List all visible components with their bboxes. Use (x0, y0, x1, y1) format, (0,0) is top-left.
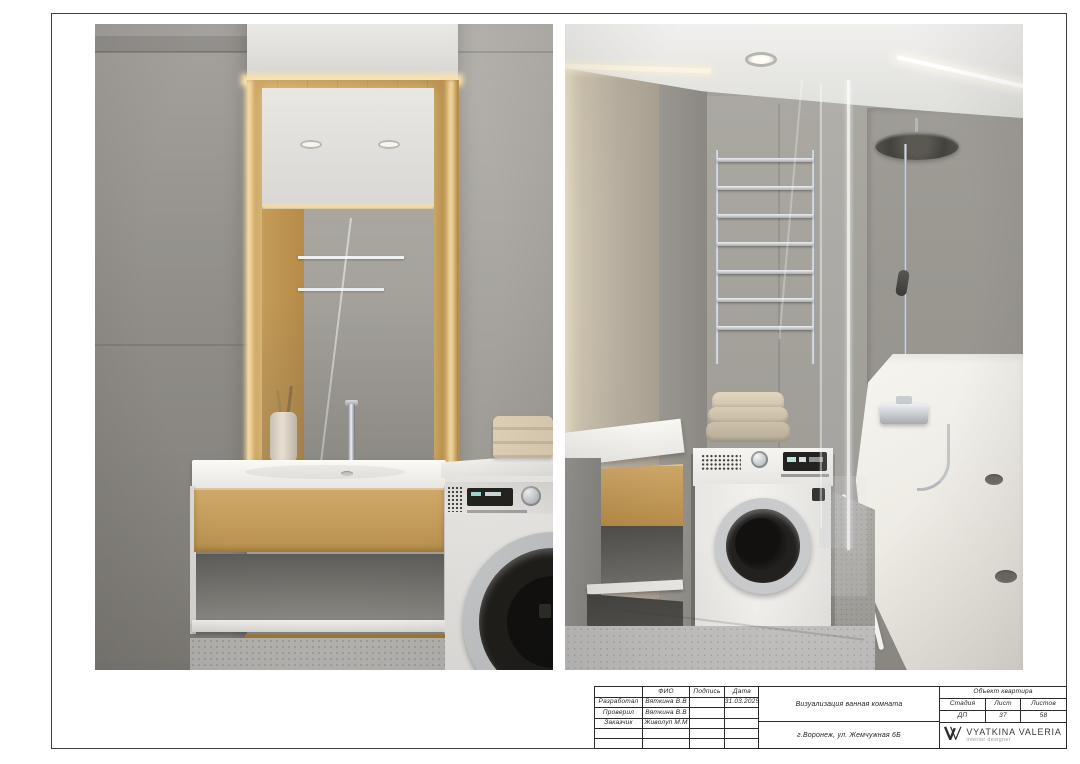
stamp-signature (689, 728, 724, 738)
project-address: г.Воронеж, ул. Жемчужная 6Б (759, 722, 939, 748)
stamp-signature (689, 738, 724, 748)
brand-logo: VYATKINA VALERIA interior designer (940, 723, 1066, 748)
stamp-date (724, 728, 759, 738)
stamp-role (595, 738, 642, 748)
stamp-cell (595, 687, 642, 697)
title-block: ФИО Подпись Дата Разработал Вяткина В.В … (594, 686, 1067, 749)
render-right-bathtub-view (565, 24, 1023, 670)
stamp-role: Разработал (595, 697, 642, 707)
brand-monogram-icon (944, 726, 962, 745)
stamp-fio (642, 728, 689, 738)
sheet-info-values: ДП 37 58 (940, 711, 1066, 723)
approval-table: ФИО Подпись Дата Разработал Вяткина В.В … (595, 687, 759, 748)
stamp-fio (642, 738, 689, 748)
object-label: Объект квартира (940, 687, 1066, 699)
stamp-signature (689, 697, 724, 707)
stamp-header-fio: ФИО (642, 687, 689, 697)
design-sheet-page: ФИО Подпись Дата Разработал Вяткина В.В … (0, 0, 1080, 764)
stamp-date (724, 718, 759, 728)
stamp-date (724, 738, 759, 748)
stage-value: ДП (940, 711, 985, 722)
brand-name: VYATKINA VALERIA (966, 728, 1061, 737)
stamp-header-date: Дата (724, 687, 759, 697)
object-section: Объект квартира Стадия Лист Листов ДП 37… (940, 687, 1066, 748)
stamp-role (595, 728, 642, 738)
sheets-label: Листов (1020, 699, 1066, 710)
sheet-value: 37 (985, 711, 1020, 722)
stamp-signature (689, 707, 724, 717)
brand-text: VYATKINA VALERIA interior designer (966, 728, 1061, 744)
stamp-role: Проверил (595, 707, 642, 717)
stamp-signature (689, 718, 724, 728)
project-section: Визуализация ванная комната г.Воронеж, у… (759, 687, 940, 748)
stamp-date (724, 707, 759, 717)
stamp-fio: Вяткина В.В (642, 697, 689, 707)
brand-tagline: interior designer (966, 738, 1011, 744)
stage-label: Стадия (940, 699, 985, 710)
stamp-header-signature: Подпись (689, 687, 724, 697)
vignette-overlay (95, 24, 553, 670)
render-left-vanity-view (95, 24, 553, 670)
vignette-overlay (565, 24, 1023, 670)
stamp-date: 31.03.2025 (724, 697, 759, 707)
sheets-value: 58 (1020, 711, 1066, 722)
stamp-role: Заказчик (595, 718, 642, 728)
sheet-label: Лист (985, 699, 1020, 710)
project-title: Визуализация ванная комната (759, 687, 939, 722)
stamp-fio: Живолуп М.М (642, 718, 689, 728)
sheet-info-header: Стадия Лист Листов (940, 699, 1066, 711)
stamp-fio: Вяткина В.В (642, 707, 689, 717)
